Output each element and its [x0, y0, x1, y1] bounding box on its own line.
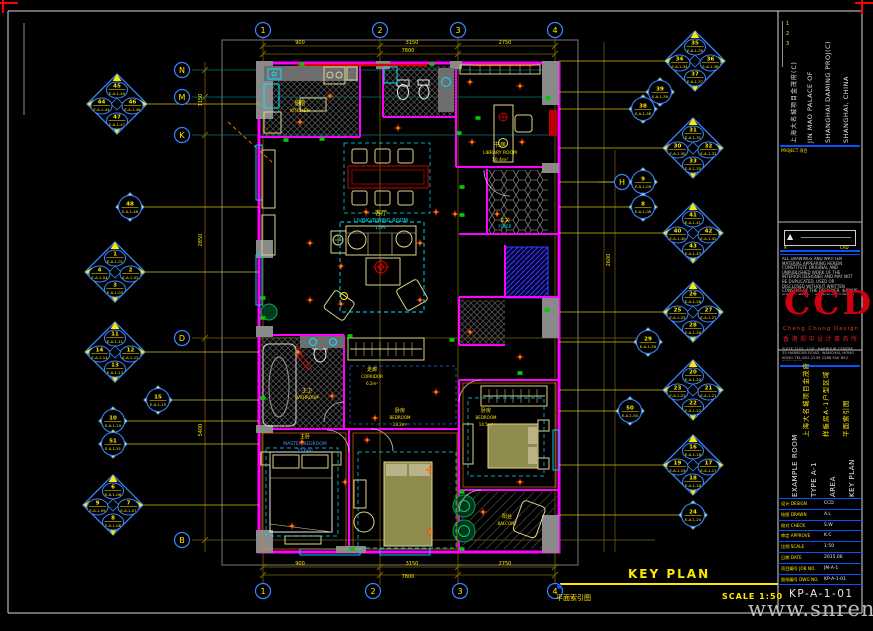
socket-icon — [300, 62, 305, 66]
svg-text:1150: 1150 — [198, 94, 204, 107]
light-fixture-icon — [307, 297, 314, 304]
socket-icon — [457, 131, 462, 135]
light-fixture-icon — [364, 437, 371, 444]
svg-text:24: 24 — [689, 510, 697, 516]
label-bedroom3-cn: 卧房 — [481, 407, 491, 414]
svg-text:43: 43 — [689, 244, 697, 250]
grid-bubble: K — [175, 128, 190, 143]
light-fixture-icon — [289, 523, 296, 530]
elevation-marker-quad: 1E-A-1-014E-A-1-042E-A-1-023E-A-1-03 — [85, 242, 259, 302]
svg-text:E-A-1-08: E-A-1-08 — [635, 209, 652, 214]
socket-icon — [476, 116, 481, 120]
light-fixture-icon — [433, 389, 440, 396]
field-label: 项目编号 JOB NO. — [781, 566, 815, 572]
address-rule — [780, 365, 860, 367]
light-fixture-icon — [517, 479, 524, 486]
ccd-logo-subtitle-cn: 香港郑中设计事务所 — [783, 334, 860, 343]
svg-text:46: 46 — [129, 100, 137, 106]
light-fixture-icon — [452, 211, 459, 218]
light-fixture-icon — [395, 125, 402, 132]
grid-bubble: 4 — [548, 23, 563, 38]
revision-number: 1 — [786, 21, 789, 27]
svg-text:6: 6 — [111, 485, 115, 491]
svg-text:36: 36 — [707, 57, 715, 63]
svg-text:9: 9 — [641, 177, 645, 183]
svg-text:27: 27 — [705, 308, 713, 314]
svg-text:H: H — [619, 178, 625, 187]
svg-text:900: 900 — [295, 40, 305, 46]
svg-text:E-A-1-01: E-A-1-01 — [107, 259, 124, 264]
north-dot-icon — [557, 584, 562, 589]
socket-icon — [261, 316, 266, 320]
field-label: 校对 CHECK — [781, 523, 805, 529]
svg-text:E-A-1-37: E-A-1-37 — [687, 79, 704, 84]
svg-text:2750: 2750 — [499, 40, 512, 46]
light-fixture-icon — [517, 83, 524, 90]
svg-text:11: 11 — [111, 332, 119, 338]
label-living-en: LIVING/DINING ROOM — [354, 218, 408, 224]
elevation-marker-single: 51E-A-1-51 — [99, 430, 259, 458]
label-bedroom2-cn: 卧房 — [395, 407, 405, 414]
svg-text:E-A-1-18: E-A-1-18 — [685, 483, 702, 488]
project-rule-label: PROJECT 项目 — [781, 148, 808, 154]
svg-text:E-A-1-10: E-A-1-10 — [105, 423, 122, 428]
socket-icon — [261, 296, 266, 300]
grid-bubble: 3 — [451, 23, 466, 38]
label-master-bed-area: 15.6m² — [297, 448, 313, 454]
svg-text:2: 2 — [129, 268, 133, 274]
vertical-text: 样板房A-1户型区域 — [820, 371, 830, 437]
svg-text:8: 8 — [641, 202, 645, 208]
svg-text:E-A-1-11: E-A-1-11 — [107, 339, 124, 344]
vertical-text: SHANGHAI DAMING PROJ(C) — [824, 41, 832, 143]
light-fixture-icon — [342, 479, 349, 486]
svg-text:7800: 7800 — [402, 574, 415, 580]
svg-text:N: N — [179, 66, 185, 75]
elevation-marker-single: 24E-A-1-24 — [559, 501, 707, 529]
svg-text:B: B — [179, 536, 185, 545]
light-fixture-icon — [338, 263, 345, 270]
grid-bubble: 2 — [373, 23, 388, 38]
grid-bubble: 1 — [256, 584, 271, 599]
svg-text:1: 1 — [113, 252, 117, 258]
light-fixture-icon — [433, 209, 440, 216]
svg-text:E-A-1-31: E-A-1-31 — [685, 135, 702, 140]
svg-text:E-A-1-02: E-A-1-02 — [122, 275, 139, 280]
consultant-logo-icon: ▲ — [787, 232, 793, 241]
elevation-marker-single: 29E-A-1-29 — [559, 328, 662, 356]
consultant-rule-2 — [780, 254, 860, 256]
grid-bubble: H — [615, 175, 630, 190]
consultant-box: ▲ — [784, 230, 856, 246]
svg-text:E-A-1-40: E-A-1-40 — [669, 236, 686, 241]
vertical-text: EXAMPLE ROOM — [791, 434, 799, 497]
field-value: JM-A-1 — [824, 566, 838, 571]
label-living-area: 15m² — [375, 225, 387, 231]
svg-text:12: 12 — [127, 348, 135, 354]
field-value: K.C — [824, 533, 832, 538]
elevation-marker-single: 10E-A-1-10 — [99, 407, 259, 435]
svg-text:E-A-1-36: E-A-1-36 — [702, 64, 719, 69]
svg-text:E-A-1-08: E-A-1-08 — [105, 523, 122, 528]
svg-text:3150: 3150 — [406, 40, 419, 46]
vertical-text: 上海大名城项目金茂府 — [800, 362, 810, 437]
svg-text:3: 3 — [457, 587, 462, 596]
svg-text:E-A-1-20: E-A-1-20 — [685, 377, 702, 382]
svg-text:33: 33 — [689, 159, 697, 165]
svg-text:8: 8 — [111, 516, 115, 522]
field-value: 2015.06 — [824, 555, 843, 560]
svg-text:E-A-1-48: E-A-1-48 — [122, 209, 139, 214]
socket-icon — [545, 308, 550, 312]
socket-icon — [546, 96, 551, 100]
label-corridor-en: CORRIDOR — [361, 374, 383, 379]
field-value: CCD — [824, 501, 834, 506]
ccd-logo: CCD — [784, 283, 873, 322]
field-value: KP-A-1-01 — [824, 577, 846, 582]
svg-text:25: 25 — [674, 308, 682, 314]
svg-text:1: 1 — [260, 26, 265, 35]
svg-text:3: 3 — [113, 283, 117, 289]
svg-text:E-A-1-04: E-A-1-04 — [91, 275, 108, 280]
vertical-text: KEY PLAN — [848, 459, 856, 497]
elevation-marker-quad: 6E-A-1-069E-A-1-097E-A-1-078E-A-1-08 — [83, 475, 259, 535]
light-fixture-icon — [417, 240, 424, 247]
svg-text:E-A-1-39: E-A-1-39 — [652, 94, 669, 99]
svg-text:E-A-1-24: E-A-1-24 — [685, 517, 702, 522]
svg-text:10: 10 — [109, 416, 117, 422]
svg-text:E-A-1-46: E-A-1-46 — [124, 107, 141, 112]
svg-text:34: 34 — [676, 57, 684, 63]
svg-text:47: 47 — [113, 115, 121, 121]
svg-text:32: 32 — [705, 144, 713, 150]
svg-text:31: 31 — [689, 128, 697, 134]
label-library-cn: 书房 — [494, 141, 506, 149]
elevation-marker-single: 39E-A-1-39 — [559, 78, 674, 106]
svg-text:E-A-1-09: E-A-1-09 — [635, 184, 652, 189]
svg-text:D: D — [179, 334, 185, 343]
svg-text:E-A-1-42: E-A-1-42 — [700, 236, 717, 241]
svg-text:20: 20 — [689, 370, 697, 376]
svg-text:E-A-1-51: E-A-1-51 — [105, 446, 122, 451]
label-bedroom2-en: BEDROOM — [390, 415, 411, 420]
svg-text:E-A-1-44: E-A-1-44 — [93, 107, 110, 112]
light-fixture-icon — [469, 139, 476, 146]
field-label: 绘图 DRAWN — [781, 512, 807, 518]
titleblock-fields: 设计 DESIGNCCD绘图 DRAWNA.L校对 CHECKS.W审定 APP… — [778, 498, 862, 585]
svg-text:E-A-1-32: E-A-1-32 — [700, 151, 717, 156]
title-block: 123 上海大名城项目金茂府(C)JIN MAO PALACE OFSHANGH… — [778, 11, 862, 613]
svg-text:E-A-1-27: E-A-1-27 — [700, 315, 717, 320]
field-value: A.L — [824, 512, 831, 517]
svg-text:30: 30 — [674, 144, 682, 150]
svg-text:29: 29 — [644, 337, 652, 343]
elevation-marker-single: 15E-A-1-15 — [144, 386, 259, 414]
svg-text:23: 23 — [674, 386, 682, 392]
light-fixture-icon — [338, 301, 345, 308]
svg-text:4: 4 — [552, 26, 557, 35]
svg-text:E-A-1-50: E-A-1-50 — [622, 413, 639, 418]
svg-text:E-A-1-43: E-A-1-43 — [685, 251, 702, 256]
socket-icon — [430, 62, 435, 66]
elevation-marker-single: 8E-A-1-08 — [559, 193, 657, 221]
svg-text:35: 35 — [691, 41, 699, 47]
svg-text:E-A-1-09: E-A-1-09 — [89, 508, 106, 513]
svg-text:26: 26 — [689, 292, 697, 298]
svg-text:900: 900 — [295, 561, 305, 567]
light-fixture-icon — [372, 415, 379, 422]
svg-text:3: 3 — [455, 26, 460, 35]
elevation-marker-quad: 16E-A-1-1619E-A-1-1917E-A-1-1718E-A-1-18 — [559, 435, 723, 495]
svg-text:2750: 2750 — [499, 561, 512, 567]
elevation-marker-quad: 31E-A-1-3130E-A-1-3032E-A-1-3233E-A-1-33 — [559, 118, 723, 178]
light-fixture-icon — [307, 240, 314, 247]
grid-bubble: D — [175, 331, 190, 346]
svg-text:51: 51 — [109, 439, 117, 445]
socket-icon — [518, 371, 523, 375]
svg-text:E-A-1-22: E-A-1-22 — [685, 408, 702, 413]
field-value: 1:50 — [824, 544, 834, 549]
label-library-area: 10.4m² — [492, 157, 508, 163]
label-balcony-en: BALCONY — [497, 521, 517, 526]
svg-text:4: 4 — [98, 268, 102, 274]
svg-text:E-A-1-38: E-A-1-38 — [635, 111, 652, 116]
svg-text:E-A-1-47: E-A-1-47 — [109, 122, 126, 127]
socket-icon — [350, 547, 355, 551]
label-master-bed-cn: 主卧 — [300, 433, 310, 440]
grid-bubble: N — [175, 63, 190, 78]
svg-text:22: 22 — [689, 401, 697, 407]
label-bedroom3-area: 14.5m² — [479, 422, 494, 427]
svg-text:39: 39 — [656, 87, 664, 93]
svg-text:42: 42 — [705, 229, 713, 235]
floor-plan-drawing: 客厅 LIVING/DINING ROOM 15m² 书房 LIBRARY RO… — [0, 0, 873, 631]
svg-text:E-A-1-06: E-A-1-06 — [105, 492, 122, 497]
socket-icon — [460, 547, 465, 551]
project-rule — [780, 145, 860, 147]
field-label: 比例 SCALE — [781, 544, 804, 550]
svg-text:E-A-1-33: E-A-1-33 — [685, 166, 702, 171]
grid-bubble: B — [175, 533, 190, 548]
label-master-bath-en: BATHROOM — [295, 395, 319, 400]
socket-icon — [460, 185, 465, 189]
socket-icon — [460, 490, 465, 494]
svg-text:13: 13 — [111, 363, 119, 369]
svg-text:14: 14 — [96, 348, 104, 354]
svg-text:40: 40 — [674, 229, 682, 235]
svg-text:16: 16 — [689, 445, 697, 451]
label-living-cn: 客厅 — [375, 209, 387, 217]
vertical-text: 平面索引图 — [840, 400, 850, 438]
elevation-marker-single: 38E-A-1-38 — [559, 95, 657, 123]
svg-text:21: 21 — [705, 386, 713, 392]
label-bedroom3-en: BEDROOM — [476, 415, 497, 420]
label-kitchen-cn: 厨房 — [294, 99, 306, 107]
watermark: www.snren.com — [748, 597, 873, 621]
field-label: 日期 DATE — [781, 555, 802, 561]
label-master-bath-cn: 主卫 — [302, 387, 312, 394]
label-foyer-en: FOYER — [499, 224, 512, 229]
field-label: 图纸编号 DWG NO. — [781, 577, 819, 583]
field-label: 设计 DESIGN — [781, 501, 807, 507]
svg-text:K: K — [179, 131, 185, 140]
key-plan-underline — [560, 583, 778, 585]
svg-text:48: 48 — [126, 202, 134, 208]
svg-text:28: 28 — [689, 323, 697, 329]
svg-text:E-A-1-23: E-A-1-23 — [669, 393, 686, 398]
svg-text:E-A-1-34: E-A-1-34 — [671, 64, 688, 69]
svg-text:E-A-1-29: E-A-1-29 — [640, 344, 657, 349]
elevation-marker-single: 50E-A-1-50 — [559, 397, 644, 425]
grid-bubble: 3 — [453, 584, 468, 599]
label-kitchen-en: KITCHEN — [290, 108, 310, 114]
elevation-marker-quad: 35E-A-1-3534E-A-1-3436E-A-1-3637E-A-1-37 — [559, 31, 725, 91]
svg-text:45: 45 — [113, 84, 121, 90]
svg-text:E-A-1-25: E-A-1-25 — [669, 315, 686, 320]
light-fixture-icon — [517, 354, 524, 361]
svg-text:E-A-1-12: E-A-1-12 — [122, 355, 139, 360]
svg-text:E-A-1-19: E-A-1-19 — [669, 468, 686, 473]
svg-text:M: M — [179, 93, 186, 102]
svg-text:E-A-1-26: E-A-1-26 — [685, 299, 702, 304]
elevation-marker-quad: 11E-A-1-1114E-A-1-1412E-A-1-1213E-A-1-13 — [85, 322, 259, 382]
label-corridor-area: 6.2m² — [366, 381, 378, 386]
socket-icon — [261, 396, 266, 400]
svg-text:3150: 3150 — [406, 561, 419, 567]
svg-text:18: 18 — [689, 476, 697, 482]
svg-text:E-A-1-21: E-A-1-21 — [700, 393, 717, 398]
field-label: 审定 APPROVE — [781, 533, 810, 539]
svg-text:E-A-1-07: E-A-1-07 — [120, 508, 137, 513]
svg-text:41: 41 — [689, 213, 697, 219]
svg-text:44: 44 — [98, 100, 106, 106]
plan-caption-cn: 平面索引图 — [556, 593, 591, 603]
svg-text:15: 15 — [154, 395, 162, 401]
svg-text:E-A-1-17: E-A-1-17 — [700, 468, 717, 473]
grid-bubble: M — [175, 90, 190, 105]
grid-bubble: 1 — [256, 23, 271, 38]
svg-text:19: 19 — [674, 461, 682, 467]
vertical-text: AREA — [829, 476, 837, 497]
svg-text:E-A-1-28: E-A-1-28 — [685, 330, 702, 335]
svg-text:50: 50 — [626, 406, 634, 412]
label-corridor-cn: 走廊 — [367, 366, 377, 373]
svg-text:38: 38 — [639, 104, 647, 110]
light-fixture-icon — [467, 79, 474, 86]
svg-text:17: 17 — [705, 461, 713, 467]
svg-text:E-A-1-45: E-A-1-45 — [109, 91, 126, 96]
elevation-marker-quad: 45E-A-1-4544E-A-1-4446E-A-1-4647E-A-1-47 — [87, 74, 259, 134]
svg-text:E-A-1-14: E-A-1-14 — [91, 355, 108, 360]
label-library-en: LIBRARY ROOM — [483, 150, 517, 156]
label-balcony-cn: 阳台 — [502, 513, 512, 520]
revision-number: 2 — [786, 31, 789, 37]
svg-text:2600: 2600 — [606, 254, 612, 267]
elevation-marker-single: 48E-A-1-48 — [116, 193, 259, 221]
firm-address: SUITE 2101, 21/F., HARBOUR CENTRE, 25 HA… — [782, 347, 858, 361]
vertical-text: JIN MAO PALACE OF — [806, 71, 814, 143]
vertical-text: TYPE A-1 — [810, 462, 818, 497]
field-value: S.W — [824, 523, 833, 528]
socket-icon — [450, 338, 455, 342]
svg-text:E-A-1-15: E-A-1-15 — [150, 402, 167, 407]
svg-text:9: 9 — [96, 501, 100, 507]
socket-icon — [284, 138, 289, 142]
svg-text:E-A-1-30: E-A-1-30 — [669, 151, 686, 156]
svg-text:37: 37 — [691, 72, 699, 78]
svg-text:E-A-1-41: E-A-1-41 — [685, 220, 702, 225]
svg-text:E-A-1-16: E-A-1-16 — [685, 452, 702, 457]
light-fixture-icon — [363, 209, 370, 216]
grid-bubble: 2 — [366, 584, 381, 599]
label-foyer-cn: 玄关 — [500, 217, 510, 224]
svg-text:E-A-1-35: E-A-1-35 — [687, 48, 704, 53]
svg-text:2850: 2850 — [198, 234, 204, 247]
socket-icon — [348, 334, 353, 338]
key-plan-title: KEY PLAN — [628, 567, 710, 581]
svg-text:5400: 5400 — [198, 424, 204, 437]
consultant-rule-1 — [780, 250, 860, 252]
svg-text:E-A-1-03: E-A-1-03 — [107, 290, 124, 295]
svg-text:2: 2 — [377, 26, 382, 35]
ccd-logo-subtitle: Cheng Chung Design — [783, 326, 859, 332]
svg-text:1: 1 — [260, 587, 265, 596]
socket-icon — [460, 213, 465, 217]
light-fixture-icon — [519, 139, 526, 146]
label-bedroom2-area: 13.2m² — [393, 422, 408, 427]
svg-text:2: 2 — [370, 587, 375, 596]
elevation-marker-single: 9E-A-1-09 — [559, 168, 657, 196]
vertical-text: SHANGHAI, CHINA — [842, 76, 850, 143]
socket-icon — [320, 137, 325, 141]
svg-text:7800: 7800 — [402, 48, 415, 54]
svg-text:7: 7 — [127, 501, 131, 507]
revision-number: 3 — [786, 41, 789, 47]
svg-text:E-A-1-13: E-A-1-13 — [107, 370, 124, 375]
vertical-text: 上海大名城项目金茂府(C) — [789, 61, 798, 143]
